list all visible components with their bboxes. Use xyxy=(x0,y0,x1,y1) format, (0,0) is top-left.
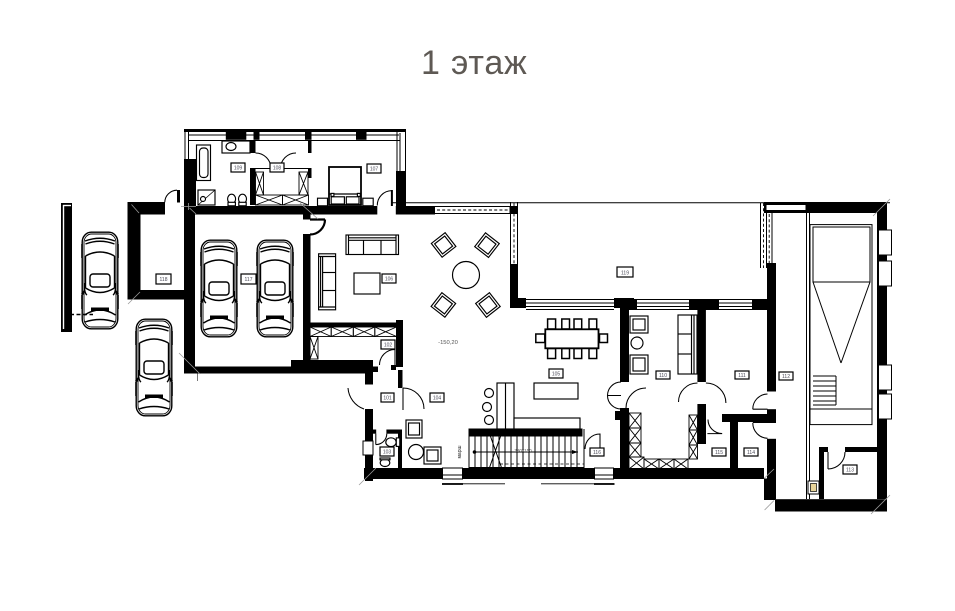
svg-text:112: 112 xyxy=(782,374,790,380)
svg-text:марш: марш xyxy=(457,445,463,458)
svg-text:109: 109 xyxy=(234,166,243,172)
svg-text:103: 103 xyxy=(383,450,392,456)
svg-text:111: 111 xyxy=(738,373,746,379)
svg-text:280x150: 280x150 xyxy=(514,448,532,453)
svg-text:105: 105 xyxy=(552,372,561,378)
svg-text:113: 113 xyxy=(846,468,854,474)
svg-text:104: 104 xyxy=(433,396,442,402)
svg-text:1 этаж: 1 этаж xyxy=(421,44,528,82)
svg-text:106: 106 xyxy=(385,277,394,283)
svg-text:117: 117 xyxy=(245,277,253,283)
svg-text:102: 102 xyxy=(384,343,393,349)
svg-text:101: 101 xyxy=(383,396,392,402)
svg-text:-150,20: -150,20 xyxy=(438,340,458,346)
svg-text:107: 107 xyxy=(370,167,379,173)
svg-text:114: 114 xyxy=(747,450,755,456)
svg-text:118: 118 xyxy=(160,277,168,283)
svg-text:119: 119 xyxy=(621,271,629,277)
svg-text:108: 108 xyxy=(273,166,282,172)
svg-text:116: 116 xyxy=(593,450,601,456)
svg-text:115: 115 xyxy=(715,450,723,456)
svg-text:110: 110 xyxy=(659,373,667,379)
